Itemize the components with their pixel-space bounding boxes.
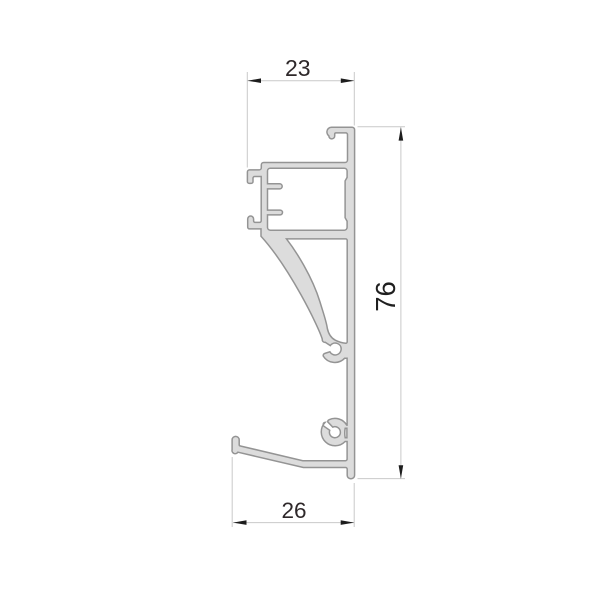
svg-text:26: 26: [281, 498, 306, 523]
svg-text:76: 76: [370, 281, 401, 312]
svg-text:23: 23: [285, 55, 311, 81]
